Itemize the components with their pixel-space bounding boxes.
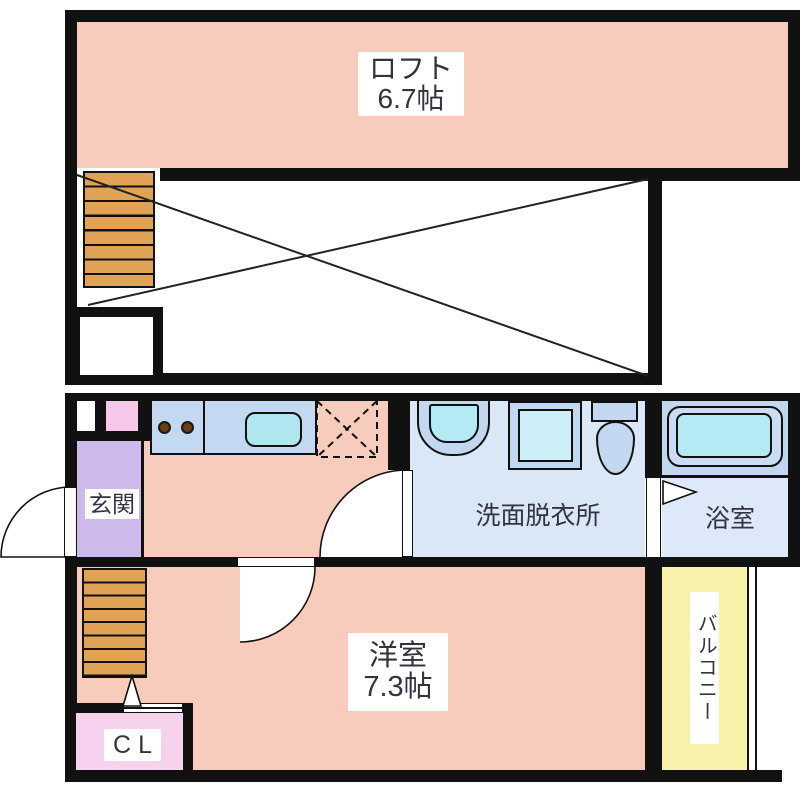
entrance-label: 玄関 — [85, 489, 139, 519]
wall-washroom-bathroom — [645, 399, 662, 478]
loft-label: ロフト 6.7帖 — [358, 52, 464, 116]
wall-1f-top — [65, 393, 800, 401]
wall-closet-right — [183, 703, 193, 770]
bathroom-name: 浴室 — [705, 506, 755, 533]
wall-right-upper — [788, 10, 800, 181]
closet-name: CL — [113, 732, 159, 759]
cabinet-box — [106, 401, 138, 431]
washing-machine-icon — [518, 409, 573, 462]
entrance-step-line — [141, 441, 144, 557]
balcony-label: バルコニー — [690, 592, 719, 744]
stairs-to-loft — [83, 171, 155, 288]
wall-bottom-outer — [65, 770, 782, 782]
bathtub-icon — [667, 406, 783, 467]
wall-closet-top — [76, 703, 123, 713]
balcony-name: バルコニー — [694, 613, 716, 723]
washroom-name: 洗面脱衣所 — [475, 503, 600, 530]
void-structure-box — [70, 307, 163, 385]
wall-loft-bottom — [160, 168, 800, 181]
stairs-first-floor — [82, 568, 147, 678]
wall-hall-bottom-right — [315, 557, 790, 567]
bathtub-inner — [676, 413, 772, 458]
wall-hall-bottom-left — [65, 557, 237, 567]
wall-void-right — [648, 170, 662, 385]
wall-kitchen-washroom — [388, 393, 410, 470]
main-room-name: 洋室 — [369, 641, 427, 672]
wall-mainroom-balcony — [645, 557, 662, 770]
main-room-size: 7.3帖 — [363, 672, 432, 703]
closet-sliding-door — [123, 703, 183, 713]
stove-burner-icon — [181, 421, 194, 434]
wall-right-lower — [788, 393, 800, 567]
main-room-label: 洋室 7.3帖 — [348, 633, 448, 711]
wall-below-boxes — [65, 431, 150, 441]
stove-burner-icon — [158, 421, 171, 434]
closet-label: CL — [104, 729, 161, 761]
wall-left-lower-a — [65, 393, 77, 487]
entrance-name: 玄関 — [89, 492, 135, 517]
entrance-door-swing-icon — [1, 487, 71, 557]
washroom-door-panel — [402, 470, 413, 557]
loft-name: ロフト — [369, 54, 453, 84]
loft-size: 6.7帖 — [378, 84, 445, 114]
main-room-door-panel — [237, 557, 315, 567]
floor-plan: ロフト 6.7帖 玄関 洗面脱衣所 浴室 洋室 7.3帖 CL バルコニー — [0, 0, 800, 790]
kitchen-counter — [150, 399, 317, 455]
void-structure-box-inner — [80, 317, 153, 375]
washbasin-bowl — [429, 404, 479, 443]
counter-divider — [203, 401, 205, 453]
wall-top-outer — [65, 10, 800, 22]
kitchen-sink-icon — [245, 412, 302, 447]
washing-machine-pan-icon — [508, 401, 582, 470]
bathroom-label: 浴室 — [699, 504, 761, 534]
toilet-tank-icon — [591, 401, 638, 422]
entrance-door-panel — [64, 487, 77, 557]
washroom-label: 洗面脱衣所 — [448, 500, 628, 532]
balcony-railing — [747, 567, 757, 770]
bathroom-door-opening — [646, 478, 661, 557]
